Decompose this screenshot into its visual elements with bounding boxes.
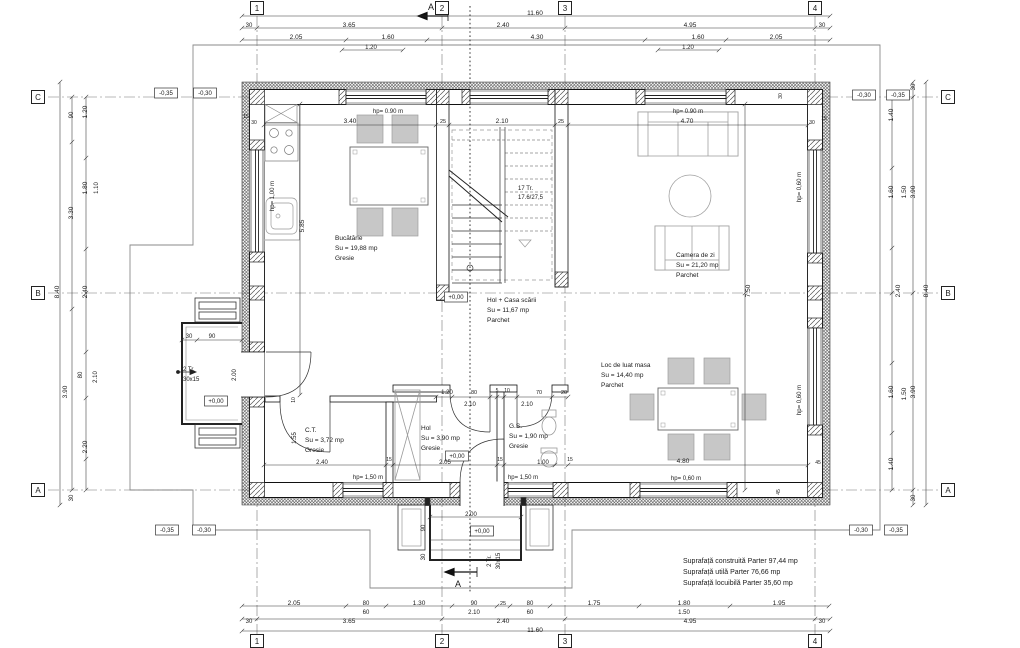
svg-text:Su = 1,90 mp: Su = 1,90 mp — [509, 433, 548, 440]
room-area: Su = 11,67 mp — [487, 307, 529, 314]
dim-partition: 15 — [497, 457, 503, 463]
svg-text:4: 4 — [813, 4, 818, 13]
dim-bottom: 1.30 — [413, 600, 426, 607]
dim-room: 4.70 — [681, 118, 694, 125]
svg-text:-0,35: -0,35 — [891, 93, 905, 99]
wall-pier — [250, 397, 265, 407]
svg-text:4.80: 4.80 — [677, 458, 690, 465]
dim-room: 2.10 — [496, 118, 509, 125]
svg-text:25: 25 — [500, 601, 506, 607]
svg-text:70: 70 — [536, 390, 542, 396]
dimension-line — [890, 95, 894, 492]
svg-text:2: 2 — [440, 637, 445, 646]
level-marker: -0,35 — [885, 525, 908, 535]
dim-bottom: 25 — [500, 601, 506, 607]
window — [346, 90, 426, 105]
coffee-table — [669, 175, 711, 217]
dim-bottom: 60 — [527, 610, 534, 616]
wall-pier — [250, 90, 265, 105]
wall-pier — [808, 286, 823, 300]
dim-bottom: 90 — [471, 601, 478, 607]
dim-right: 1.50 — [901, 185, 908, 198]
dim-bottom: 1.50 — [678, 610, 690, 616]
svg-text:7.50: 7.50 — [745, 284, 752, 297]
level-marker: +0,00 — [471, 526, 494, 536]
dim-bottom: 80 — [363, 601, 370, 607]
summary-line-2: Suprafață utilă Parter 76,66 mp — [683, 569, 780, 576]
svg-text:2.10: 2.10 — [496, 118, 509, 125]
window — [343, 483, 383, 498]
hp-label: hp= 0,60 m — [797, 172, 803, 202]
dim-partition: 1.55 — [292, 432, 298, 444]
dim-bottom: 2.05 — [288, 600, 301, 607]
wall-pier — [553, 483, 568, 498]
kitchen-hood — [265, 105, 297, 123]
porch-bottom-dim: 90 — [421, 524, 427, 531]
svg-text:1.40: 1.40 — [888, 108, 895, 121]
svg-text:30: 30 — [819, 23, 826, 29]
svg-text:2.10: 2.10 — [521, 402, 533, 408]
wall-pier — [426, 90, 437, 105]
dim-partition: 1.00 — [537, 460, 549, 466]
svg-text:2.05: 2.05 — [290, 34, 303, 41]
room-name-camera-zi: Camera de zi — [676, 252, 715, 259]
dim-top: 3.65 — [343, 22, 356, 29]
svg-text:60: 60 — [527, 610, 534, 616]
svg-text:30: 30 — [911, 494, 917, 501]
grid-bubble-C-right: C — [942, 91, 955, 104]
svg-text:2.05: 2.05 — [439, 460, 451, 466]
dim-right: 8.40 — [923, 284, 930, 297]
dim-partition: 4.80 — [677, 458, 690, 465]
dim-bottom: 30 — [819, 619, 826, 625]
svg-text:C.T.: C.T. — [305, 427, 317, 434]
dim-left: 3.90 — [62, 385, 69, 398]
room-name-ct: C.T. — [305, 427, 317, 434]
dim-bottom: 1.75 — [588, 600, 601, 607]
svg-text:15: 15 — [243, 114, 249, 120]
dim-bottom: 1.95 — [773, 600, 786, 607]
svg-text:15: 15 — [821, 116, 827, 122]
wall-pier — [808, 140, 823, 150]
svg-text:3.40: 3.40 — [344, 118, 357, 125]
window — [508, 483, 553, 498]
dimension-line — [240, 617, 832, 621]
dim-left: 80 — [78, 371, 84, 378]
svg-text:4: 4 — [813, 637, 818, 646]
dimension-line — [70, 95, 74, 492]
svg-text:B: B — [945, 289, 950, 298]
svg-text:1.55: 1.55 — [292, 432, 298, 444]
svg-text:20: 20 — [561, 390, 567, 396]
wall-pier — [808, 425, 823, 435]
level-marker: -0,35 — [156, 525, 179, 535]
svg-text:3.30: 3.30 — [68, 206, 75, 219]
wall-pier — [450, 483, 460, 498]
wall-pier — [383, 483, 393, 498]
wall-pier — [333, 483, 343, 498]
dim-left: 90 — [69, 111, 75, 118]
svg-text:3.90: 3.90 — [910, 185, 917, 198]
wall-pier — [462, 90, 470, 105]
svg-text:1.80: 1.80 — [678, 600, 691, 607]
wall-pier — [630, 483, 640, 498]
dim-wall: 30 — [809, 120, 815, 126]
window — [645, 90, 726, 105]
dimension-line — [262, 463, 810, 467]
staircase — [449, 127, 552, 283]
toilet — [542, 410, 556, 435]
svg-text:+0,00: +0,00 — [448, 295, 464, 301]
dim-room: 3.40 — [344, 118, 357, 125]
svg-text:1.20: 1.20 — [441, 390, 453, 396]
svg-text:+0,00: +0,00 — [449, 454, 465, 460]
dimension-line — [911, 80, 915, 507]
svg-text:hp= 0,60 m: hp= 0,60 m — [797, 385, 803, 415]
dim-left: 2.40 — [82, 285, 89, 298]
svg-text:10: 10 — [291, 397, 297, 403]
wall-pier — [808, 318, 823, 328]
dim-top: 30 — [819, 23, 826, 29]
svg-text:Gresie: Gresie — [305, 447, 325, 454]
svg-text:Loc de luat masa: Loc de luat masa — [601, 362, 651, 369]
svg-text:30: 30 — [69, 494, 75, 501]
level-marker: -0,35 — [887, 90, 910, 100]
dim-partition: 2.10 — [521, 402, 533, 408]
window — [470, 90, 548, 105]
svg-text:-0,30: -0,30 — [854, 528, 868, 534]
wall-pier — [250, 483, 265, 498]
dim-right: 1.60 — [888, 185, 895, 198]
dining-set — [630, 358, 766, 460]
dim-wall: 45 — [776, 489, 782, 495]
grid-bubble-3-bottom: 3 — [559, 635, 572, 648]
grid-bubble-1-bottom: 1 — [251, 635, 264, 648]
svg-text:2.40: 2.40 — [895, 284, 902, 297]
dim-left: 3.30 — [68, 206, 75, 219]
svg-text:Su = 21,20 mp: Su = 21,20 mp — [676, 262, 719, 269]
svg-text:C: C — [945, 93, 951, 102]
room-floor: Gresie — [305, 447, 325, 454]
dim-right: 1.50 — [901, 387, 908, 400]
porch-left-steps: 30x15 — [183, 377, 200, 383]
svg-text:3: 3 — [563, 637, 568, 646]
dim-right: 30 — [911, 83, 917, 90]
dim-top: 1.20 — [682, 45, 694, 51]
svg-text:Su = 14,40 mp: Su = 14,40 mp — [601, 372, 644, 379]
room-floor: Gresie — [335, 255, 355, 262]
svg-text:1: 1 — [255, 4, 260, 13]
svg-text:2.10: 2.10 — [468, 610, 480, 616]
dim-left: 1.80 — [82, 181, 89, 194]
svg-text:1.80: 1.80 — [82, 181, 89, 194]
svg-text:hp= 1,50 m: hp= 1,50 m — [508, 475, 538, 481]
svg-text:1.60: 1.60 — [382, 34, 395, 41]
svg-text:Su = 19,88 mp: Su = 19,88 mp — [335, 245, 378, 252]
hp-label: hp= 0.90 m — [673, 109, 703, 115]
wall-pier — [636, 90, 645, 105]
svg-text:10: 10 — [504, 388, 510, 394]
hp-label: hp= 0,60 m — [671, 476, 701, 482]
wall-pier — [555, 90, 568, 105]
svg-text:30: 30 — [186, 334, 193, 340]
svg-text:-0,30: -0,30 — [857, 93, 871, 99]
grid-bubble-3-top: 3 — [559, 2, 572, 15]
svg-text:Suprafață construită Parter 97: Suprafață construită Parter 97,44 mp — [683, 558, 798, 565]
level-marker: -0,30 — [193, 525, 216, 535]
svg-text:1.20: 1.20 — [82, 105, 89, 118]
dim-partition: 70 — [536, 390, 542, 396]
svg-text:1.00: 1.00 — [537, 460, 549, 466]
wall-pier — [250, 342, 265, 352]
dim-top: 1.60 — [692, 34, 705, 41]
svg-text:3.65: 3.65 — [343, 22, 356, 29]
room-floor: Parchet — [676, 272, 699, 279]
dim-bottom: 60 — [363, 610, 370, 616]
svg-text:Gresie: Gresie — [421, 445, 441, 452]
dim-partition: 15 — [386, 457, 392, 463]
svg-text:4.30: 4.30 — [531, 34, 544, 41]
svg-text:4.95: 4.95 — [684, 618, 697, 625]
svg-text:30: 30 — [246, 23, 253, 29]
summary-line-3: Suprafață locuibilă Parter 35,60 mp — [683, 580, 793, 587]
svg-text:A: A — [945, 486, 951, 495]
section-label-bottom: A — [455, 579, 461, 589]
svg-text:90: 90 — [421, 524, 427, 531]
dim-top: 4.95 — [684, 22, 697, 29]
dim-right: 2.40 — [895, 284, 902, 297]
grid-bubble-B-right: B — [942, 287, 955, 300]
dim-left: 2.20 — [82, 440, 89, 453]
wall-pier — [437, 90, 450, 105]
svg-text:Gresie: Gresie — [509, 443, 529, 450]
dim-left: 1.20 — [82, 105, 89, 118]
svg-text:C: C — [35, 93, 41, 102]
dim-top: 2.05 — [290, 34, 303, 41]
svg-text:80: 80 — [363, 601, 370, 607]
svg-text:80: 80 — [471, 390, 477, 396]
svg-text:+0,00: +0,00 — [474, 529, 490, 535]
svg-text:1.95: 1.95 — [773, 600, 786, 607]
svg-text:-0,35: -0,35 — [160, 528, 174, 534]
svg-text:60: 60 — [363, 610, 370, 616]
svg-text:Parchet: Parchet — [487, 317, 510, 324]
svg-text:-0,30: -0,30 — [197, 528, 211, 534]
dim-top: 30 — [246, 23, 253, 29]
porch-left-steps: 2 Tr. — [183, 367, 195, 373]
svg-text:45: 45 — [815, 460, 821, 466]
svg-text:hp= 0.90 m: hp= 0.90 m — [673, 109, 703, 115]
svg-text:Suprafață locuibilă Parter 35,: Suprafață locuibilă Parter 35,60 mp — [683, 580, 793, 587]
dimension-line — [298, 102, 302, 397]
section-arrow-bottom — [445, 567, 477, 577]
stair-label: 17.6/27,5 — [518, 195, 544, 201]
room-floor: Gresie — [509, 443, 529, 450]
svg-text:2.05: 2.05 — [770, 34, 783, 41]
room-name-gs: G.S. — [509, 423, 522, 430]
room-name-dining: Loc de luat masa — [601, 362, 651, 369]
room-area: Su = 14,40 mp — [601, 372, 644, 379]
svg-text:2.10: 2.10 — [93, 371, 99, 383]
svg-text:-0,35: -0,35 — [889, 528, 903, 534]
dim-left: 1.10 — [94, 182, 100, 194]
room-floor: Parchet — [487, 317, 510, 324]
dim-right: 1.40 — [888, 108, 895, 121]
wall-pier — [808, 253, 823, 263]
svg-text:A: A — [35, 486, 41, 495]
dim-top: 4.30 — [531, 34, 544, 41]
dim-bottom: 30 — [246, 619, 253, 625]
svg-text:1.20: 1.20 — [365, 45, 377, 51]
svg-text:hp= 1,00 m: hp= 1,00 m — [270, 181, 276, 211]
svg-text:90: 90 — [69, 111, 75, 118]
closet — [395, 390, 420, 480]
dim-partition: 5 — [496, 388, 499, 394]
svg-text:2 Tr.: 2 Tr. — [183, 367, 195, 373]
room-area: Su = 3,90 mp — [421, 435, 460, 442]
grid-bubble-B-left: B — [32, 287, 45, 300]
hp-label: hp= 0.90 m — [373, 109, 403, 115]
svg-text:30: 30 — [911, 83, 917, 90]
svg-text:Hol + Casa scării: Hol + Casa scării — [487, 297, 536, 304]
svg-text:A: A — [428, 2, 434, 12]
wall-pier — [548, 90, 555, 105]
stair-label: 17 Tr. — [518, 186, 533, 192]
svg-text:-0,30: -0,30 — [198, 91, 212, 97]
svg-text:2.05: 2.05 — [288, 600, 301, 607]
grid-bubble-A-left: A — [32, 484, 45, 497]
svg-text:2.40: 2.40 — [82, 285, 89, 298]
level-marker: -0,30 — [853, 90, 876, 100]
level-marker: -0,30 — [850, 525, 873, 535]
dim-top-total: 11.60 — [527, 10, 543, 17]
wall-pier — [339, 90, 346, 105]
grid-bubble-2-bottom: 2 — [436, 635, 449, 648]
dim-top: 2.05 — [770, 34, 783, 41]
svg-text:3.65: 3.65 — [343, 618, 356, 625]
dim-top: 1.20 — [365, 45, 377, 51]
dim-left: 2.10 — [93, 371, 99, 383]
dim-partition: 20 — [561, 390, 567, 396]
grid-bubble-1-top: 1 — [251, 2, 264, 15]
wall-pier — [808, 90, 823, 105]
svg-text:A: A — [455, 579, 461, 589]
svg-text:Hol: Hol — [421, 425, 431, 432]
wall-pier — [250, 252, 265, 262]
doors — [266, 352, 552, 483]
dim-left: 30 — [69, 494, 75, 501]
svg-text:Parchet: Parchet — [601, 382, 624, 389]
svg-text:1.20: 1.20 — [682, 45, 694, 51]
dim-bottom: 1.80 — [678, 600, 691, 607]
dim-left: 8.40 — [54, 285, 61, 298]
window — [250, 150, 265, 252]
level-marker: -0,30 — [194, 88, 217, 98]
grid-bubble-4-bottom: 4 — [809, 635, 822, 648]
svg-text:Parchet: Parchet — [676, 272, 699, 279]
dim-top: 2.40 — [497, 22, 510, 29]
svg-text:90: 90 — [471, 601, 478, 607]
dim-wall: 15 — [821, 116, 827, 122]
dim-partition: 80 — [471, 390, 477, 396]
svg-text:30x15: 30x15 — [183, 377, 200, 383]
room-area: Su = 3,72 mp — [305, 437, 344, 444]
kitchen-table-set — [350, 115, 428, 236]
porch-bottom-dim: 2.00 — [465, 512, 477, 518]
dim-partition: 1.20 — [441, 390, 453, 396]
svg-text:8.40: 8.40 — [54, 285, 61, 298]
dim-right: 1.60 — [888, 385, 895, 398]
wall-pier — [808, 483, 823, 498]
window — [808, 328, 823, 425]
svg-text:1.60: 1.60 — [888, 385, 895, 398]
svg-text:hp= 0,60 m: hp= 0,60 m — [671, 476, 701, 482]
dim-wall: 45 — [815, 460, 821, 466]
svg-text:1.10: 1.10 — [94, 182, 100, 194]
svg-text:15: 15 — [386, 457, 392, 463]
svg-text:Su = 11,67 mp: Su = 11,67 mp — [487, 307, 529, 314]
window — [808, 150, 823, 253]
dim-partition: 10 — [291, 397, 297, 403]
svg-text:30: 30 — [819, 619, 826, 625]
wall-pier — [726, 90, 735, 105]
svg-text:Bucătărie: Bucătărie — [335, 235, 363, 242]
room-name-hol: Hol — [421, 425, 431, 432]
section-label-top: A — [428, 2, 434, 12]
floor-plan-drawing: 11.60303.652.404.95302.051.604.301.602.0… — [0, 0, 1020, 648]
svg-text:3.90: 3.90 — [910, 385, 917, 398]
dim-partition: 15 — [567, 457, 573, 463]
svg-text:15: 15 — [497, 457, 503, 463]
summary-line-1: Suprafață construită Parter 97,44 mp — [683, 558, 798, 565]
svg-text:30: 30 — [251, 120, 257, 126]
wall-pier — [555, 272, 568, 287]
porch-bottom-dim: 30 — [421, 553, 427, 560]
svg-text:1.50: 1.50 — [901, 185, 908, 198]
dim-partition: 2.40 — [316, 460, 328, 466]
room-name-hol-scara: Hol + Casa scării — [487, 297, 536, 304]
svg-text:Suprafață utilă Parter 76,66 m: Suprafață utilă Parter 76,66 mp — [683, 569, 780, 576]
svg-text:G.S.: G.S. — [509, 423, 522, 430]
svg-text:2.40: 2.40 — [497, 618, 510, 625]
hp-label: hp= 1,50 m — [508, 475, 538, 481]
svg-text:4.70: 4.70 — [681, 118, 694, 125]
svg-text:3.90: 3.90 — [62, 385, 69, 398]
dim-bottom: 2.10 — [468, 610, 480, 616]
dim-right: 30 — [911, 494, 917, 501]
svg-text:17.6/27,5: 17.6/27,5 — [518, 195, 544, 201]
porch-bottom-steps: 30x15 — [496, 552, 502, 569]
dim-room: 25 — [440, 119, 446, 125]
svg-text:30: 30 — [809, 120, 815, 126]
level-marker: +0,00 — [445, 292, 468, 302]
room-floor: Parchet — [601, 382, 624, 389]
living-room-set — [638, 112, 738, 270]
window — [640, 483, 727, 498]
room-area: Su = 19,88 mp — [335, 245, 378, 252]
dim-wall: 15 — [243, 114, 249, 120]
svg-text:80: 80 — [527, 601, 534, 607]
dimension-line — [240, 604, 831, 608]
porch-bottom-steps: 2 Tr. — [487, 555, 493, 567]
room-area: Su = 21,20 mp — [676, 262, 719, 269]
svg-text:Gresie: Gresie — [335, 255, 355, 262]
wall-pier — [250, 286, 265, 300]
dim-partition: 10 — [504, 388, 510, 394]
svg-text:90: 90 — [209, 334, 216, 340]
dim-bottom: 80 — [527, 601, 534, 607]
dim-partition: 2.05 — [439, 460, 451, 466]
